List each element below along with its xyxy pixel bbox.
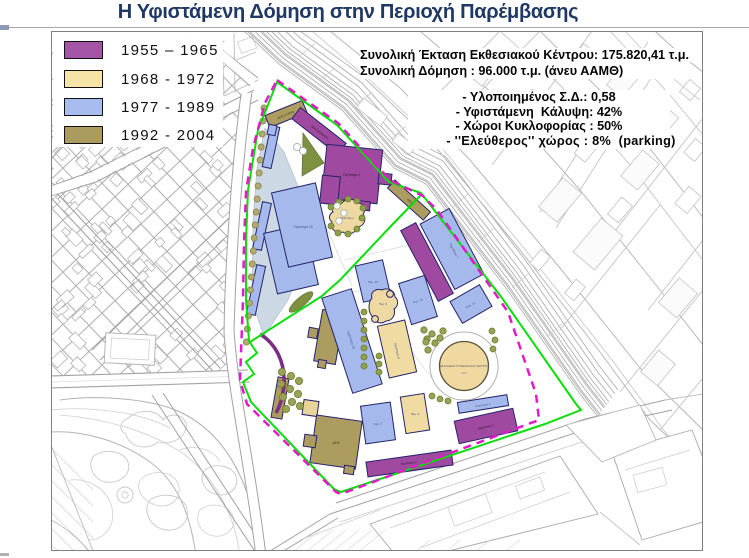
svg-text:Περ. 9: Περ. 9 [379,302,387,306]
svg-text:Περ. 6: Περ. 6 [411,412,420,416]
svg-text:ΒΕΛΛΙΔΕΙΟ ΣΥΝΕΔΡΙΑΚΟ ΚΕΝΤΡΟ: ΒΕΛΛΙΔΕΙΟ ΣΥΝΕΔΡΙΑΚΟ ΚΕΝΤΡΟ [439,364,489,368]
svg-text:ΔΕΘ: ΔΕΘ [461,372,466,375]
svg-text:ΔΕΘ: ΔΕΘ [332,441,340,445]
svg-text:Περ. 12: Περ. 12 [368,280,379,284]
svg-text:Περίπτερο: Περίπτερο [341,216,354,220]
svg-text:Περίπτερο 1: Περίπτερο 1 [343,173,361,177]
svg-text:Περίπτερο 15: Περίπτερο 15 [293,225,312,229]
